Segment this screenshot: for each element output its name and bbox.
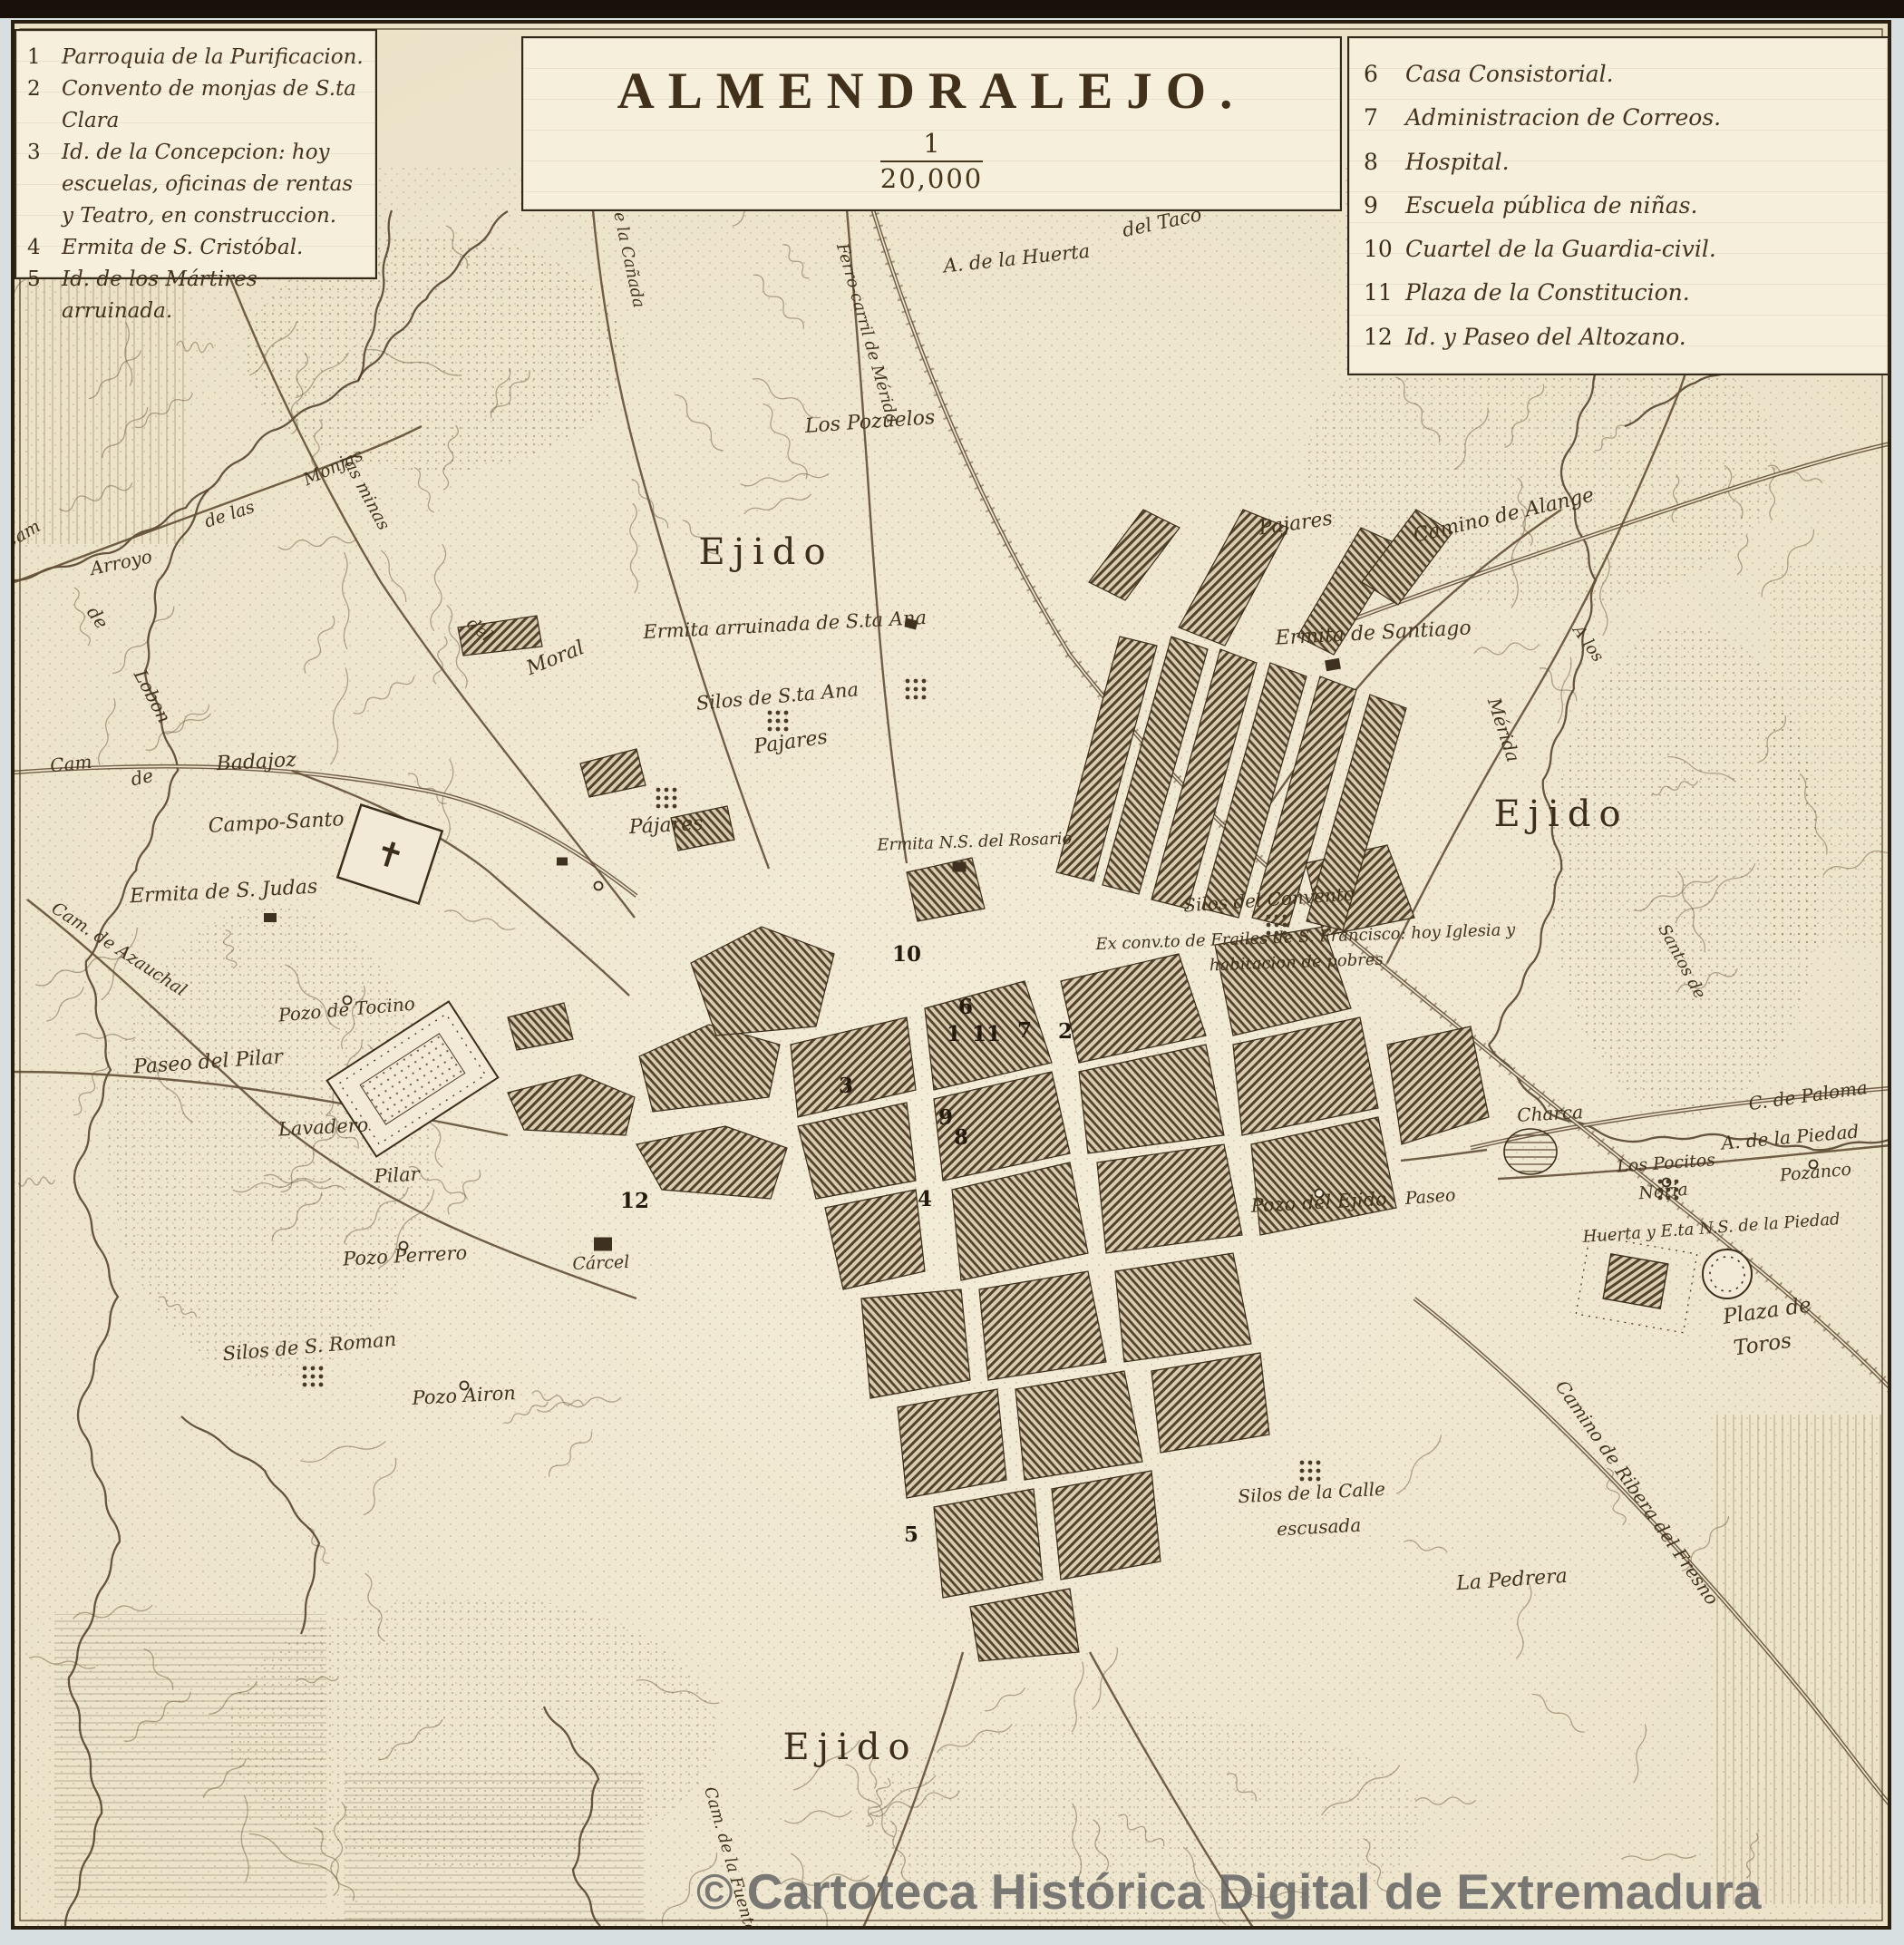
- legend-item: 4Ermita de S. Cristóbal.: [27, 232, 370, 264]
- scanned-historic-map-page: { "page": { "watermark": "© Cartoteca Hi…: [0, 0, 1904, 1945]
- legend-item-label: Administracion de Correos.: [1405, 96, 1721, 140]
- legend-box-left: 1Parroquia de la Purificacion.2Convento …: [15, 29, 377, 279]
- legend-item-number: 10: [1364, 228, 1405, 271]
- legend-item-number: 3: [27, 137, 62, 169]
- map-label: Cam: [49, 751, 92, 777]
- legend-item: 7Administracion de Correos.: [1364, 96, 1880, 140]
- legend-item-label: Casa Consistorial.: [1405, 53, 1614, 96]
- map-label: Badajoz: [215, 749, 297, 776]
- legend-item: 9Escuela pública de niñas.: [1364, 184, 1880, 228]
- legend-item-number: 6: [1364, 53, 1405, 96]
- map-number-marker: 1: [947, 1022, 961, 1046]
- legend-item-label: Escuela pública de niñas.: [1405, 184, 1697, 228]
- map-number-marker: 10: [892, 942, 921, 967]
- legend-item-label: Convento de monjas de S.ta Clara: [62, 73, 370, 137]
- legend-item-label: Parroquia de la Purificacion.: [62, 42, 364, 73]
- map-label: Paseo: [1404, 1185, 1456, 1209]
- charca-pond: [1504, 1129, 1557, 1174]
- legend-item-label: Ermita de S. Cristóbal.: [62, 232, 303, 264]
- legend-item-label: Id. de los Mártires arruinada.: [62, 264, 370, 327]
- legend-item-number: 9: [1364, 184, 1405, 228]
- legend-item: 10Cuartel de la Guardia-civil.: [1364, 228, 1880, 271]
- map-number-marker: 8: [954, 1125, 968, 1150]
- legend-item-number: 11: [1364, 271, 1405, 315]
- map-label: Ejido: [782, 1726, 918, 1768]
- map-number-marker: 9: [938, 1105, 953, 1130]
- legend-item: 11Plaza de la Constitucion.: [1364, 271, 1880, 315]
- map-number-marker: 4: [918, 1187, 932, 1211]
- legend-item-number: 7: [1364, 96, 1405, 140]
- legend-item-number: 2: [27, 73, 62, 105]
- legend-item-number: 4: [27, 232, 62, 264]
- map-number-marker: 7: [1017, 1018, 1032, 1043]
- page-top-gutter: [0, 0, 1904, 18]
- map-number-marker: 12: [620, 1189, 649, 1213]
- legend-box-right: 6Casa Consistorial.7Administracion de Co…: [1347, 36, 1889, 375]
- legend-item-label: Plaza de la Constitucion.: [1405, 271, 1690, 315]
- map-number-marker: 3: [839, 1074, 853, 1098]
- map-label: Charca: [1517, 1101, 1584, 1126]
- legend-item: 2Convento de monjas de S.ta Clara: [27, 73, 370, 137]
- map-number-marker: 6: [958, 995, 973, 1019]
- map-title: ALMENDRALEJO.: [523, 62, 1340, 121]
- watermark: © Cartoteca Histórica Digital de Extrema…: [696, 1862, 1762, 1921]
- map-label: Ejido: [1493, 793, 1628, 835]
- scale-denominator: 20,000: [880, 162, 983, 194]
- title-box: ALMENDRALEJO. 1 20,000: [521, 36, 1342, 211]
- map-label: Cárcel: [572, 1252, 630, 1274]
- legend-item: 6Casa Consistorial.: [1364, 53, 1880, 96]
- legend-item-label: Id. de la Concepcion: hoy escuelas, ofic…: [62, 137, 370, 232]
- legend-item-number: 1: [27, 42, 62, 73]
- legend-item: 5Id. de los Mártires arruinada.: [27, 264, 370, 327]
- legend-item-number: 12: [1364, 316, 1405, 359]
- legend-item-number: 5: [27, 264, 62, 296]
- legend-item-label: Hospital.: [1405, 141, 1510, 184]
- legend-item-number: 8: [1364, 141, 1405, 184]
- map-label: escusada: [1277, 1514, 1362, 1541]
- legend-item: 1Parroquia de la Purificacion.: [27, 42, 370, 73]
- legend-item-label: Cuartel de la Guardia-civil.: [1405, 228, 1716, 271]
- map-number-marker: 5: [904, 1522, 918, 1547]
- map-label: Pájares: [627, 812, 704, 839]
- map-label: de: [129, 764, 155, 791]
- legend-item: 3Id. de la Concepcion: hoy escuelas, ofi…: [27, 137, 370, 232]
- legend-item-label: Id. y Paseo del Altozano.: [1405, 316, 1686, 359]
- map-number-marker: 2: [1058, 1019, 1073, 1044]
- scale-numerator: 1: [880, 130, 983, 162]
- map-label: Pilar: [373, 1163, 422, 1188]
- legend-item: 12Id. y Paseo del Altozano.: [1364, 316, 1880, 359]
- legend-item: 8Hospital.: [1364, 141, 1880, 184]
- map-number-marker: 11: [972, 1022, 1001, 1046]
- map-label: Ejido: [698, 531, 833, 573]
- scale-fraction: 1 20,000: [880, 130, 983, 194]
